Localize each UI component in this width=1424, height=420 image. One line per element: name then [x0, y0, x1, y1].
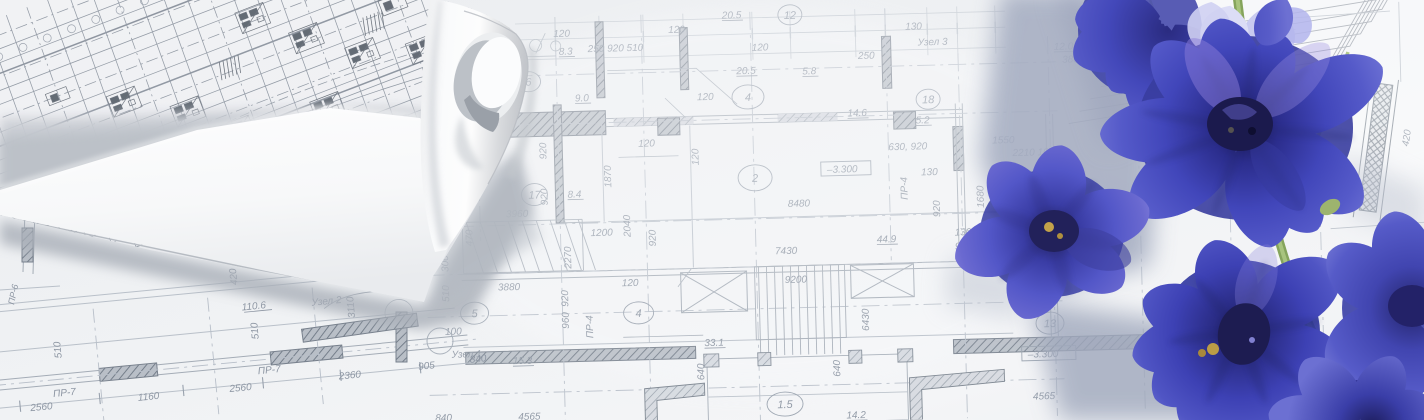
- svg-text:2: 2: [751, 173, 758, 185]
- svg-text:2360: 2360: [337, 369, 362, 382]
- svg-text:17: 17: [528, 189, 541, 201]
- svg-text:905: 905: [418, 360, 436, 373]
- svg-text:2040: 2040: [622, 214, 634, 238]
- svg-text:2560: 2560: [228, 382, 253, 395]
- svg-text:4565: 4565: [518, 411, 541, 420]
- svg-text:2270: 2270: [563, 246, 575, 270]
- svg-text:250 920 510: 250 920 510: [587, 43, 644, 55]
- svg-text:920: 920: [932, 200, 943, 217]
- svg-text:840: 840: [469, 353, 487, 366]
- svg-text:6430: 6430: [861, 308, 873, 331]
- svg-text:2560: 2560: [29, 401, 54, 414]
- svg-text:120: 120: [690, 148, 701, 165]
- svg-text:3880: 3880: [498, 282, 521, 294]
- svg-text:7430: 7430: [775, 246, 798, 258]
- svg-text:ПР-7: ПР-7: [53, 387, 77, 400]
- svg-text:130: 130: [921, 167, 938, 178]
- svg-text:14.2: 14.2: [846, 410, 866, 420]
- svg-text:920: 920: [560, 290, 571, 307]
- svg-text:4: 4: [635, 308, 641, 320]
- svg-text:12: 12: [784, 10, 797, 22]
- svg-text:120: 120: [553, 29, 570, 40]
- svg-text:640: 640: [696, 363, 707, 380]
- svg-text:510: 510: [249, 322, 262, 340]
- svg-text:510: 510: [52, 341, 65, 359]
- svg-text:1680: 1680: [975, 185, 987, 208]
- svg-text:120: 120: [752, 42, 769, 53]
- svg-text:ПР-4: ПР-4: [585, 315, 597, 339]
- svg-text:9200: 9200: [785, 274, 808, 286]
- svg-text:8480: 8480: [788, 198, 811, 210]
- svg-text:840: 840: [435, 413, 452, 420]
- svg-text:1870: 1870: [603, 165, 615, 188]
- svg-text:ПР-7: ПР-7: [257, 364, 281, 377]
- svg-text:630, 920: 630, 920: [888, 141, 928, 153]
- svg-text:1.5: 1.5: [777, 399, 793, 411]
- svg-text:130: 130: [905, 21, 922, 32]
- svg-text:1160: 1160: [137, 391, 160, 404]
- svg-text:120: 120: [668, 25, 685, 36]
- svg-text:ПР-4: ПР-4: [899, 176, 911, 200]
- svg-text:960: 960: [561, 312, 572, 329]
- svg-text:120: 120: [638, 138, 655, 149]
- svg-text:920: 920: [647, 229, 658, 246]
- svg-text:18: 18: [922, 94, 935, 106]
- svg-text:–3.300: –3.300: [826, 164, 858, 176]
- svg-text:920: 920: [539, 188, 550, 205]
- svg-text:1200: 1200: [590, 228, 613, 240]
- svg-text:4: 4: [745, 92, 751, 104]
- svg-text:Узел 3: Узел 3: [916, 37, 948, 49]
- svg-text:250: 250: [857, 51, 875, 62]
- svg-text:4565: 4565: [1033, 391, 1056, 403]
- svg-text:920: 920: [538, 142, 549, 159]
- svg-text:120: 120: [697, 92, 714, 103]
- svg-text:120: 120: [622, 278, 639, 289]
- svg-text:640: 640: [832, 359, 843, 376]
